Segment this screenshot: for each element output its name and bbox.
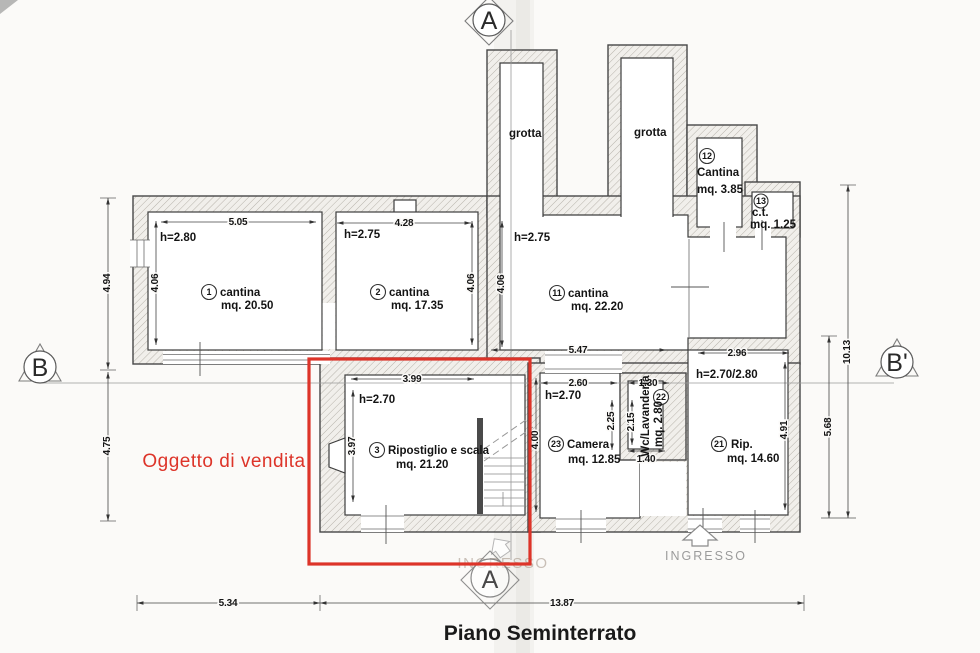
dim-wc-d1: 2.25 bbox=[606, 411, 617, 430]
room-21-height: h=2.70/2.80 bbox=[696, 369, 758, 381]
floor-plan-svg: 5.05 4.28 5.47 2.96 3.99 2.60 1.30 1.40 … bbox=[0, 0, 980, 653]
dim-room1-width: 5.05 bbox=[229, 217, 248, 228]
section-marker-a-top: A bbox=[481, 7, 498, 35]
room-3-height: h=2.70 bbox=[359, 394, 395, 406]
room-1-2-passage bbox=[323, 303, 336, 349]
room-11-number: 11 bbox=[552, 288, 562, 298]
stair-wall bbox=[477, 418, 483, 514]
room-1-number: 1 bbox=[206, 287, 211, 297]
room-12-area: mq. 3.85 bbox=[697, 184, 744, 196]
grotta-left-label: grotta bbox=[509, 128, 542, 140]
dim-room23-w1: 2.60 bbox=[569, 378, 588, 389]
room-2-name: cantina bbox=[389, 287, 430, 299]
room-3-number: 3 bbox=[374, 445, 379, 455]
dim-right-total: 10.13 bbox=[842, 339, 853, 364]
dim-room21-depth: 4.91 bbox=[779, 420, 790, 439]
corridor-interior bbox=[640, 462, 686, 516]
dim-room23-depth: 4.00 bbox=[530, 430, 541, 449]
dim-room2-depth: 4.06 bbox=[466, 273, 477, 292]
room-12-door-opening bbox=[710, 225, 736, 239]
entrance-label: INGRESSO bbox=[665, 549, 747, 563]
dim-room1-depth: 4.06 bbox=[150, 273, 161, 292]
dim-room2-width: 4.28 bbox=[395, 218, 414, 229]
dim-left-upper: 4.94 bbox=[102, 273, 113, 292]
sale-label: Oggetto di vendita bbox=[142, 451, 305, 472]
dim-left-lower: 4.75 bbox=[102, 436, 113, 455]
dim-room3-depth: 3.97 bbox=[347, 436, 358, 455]
grotta-left-interior bbox=[500, 63, 543, 217]
room-13-name: c.t. bbox=[752, 207, 769, 219]
dim-right-lower: 5.68 bbox=[823, 417, 834, 436]
room-3-window-niche bbox=[329, 438, 345, 473]
room-13-number: 13 bbox=[756, 196, 766, 206]
room-1-left-window bbox=[130, 240, 150, 267]
dim-room21-width: 2.96 bbox=[728, 348, 747, 359]
room-22-area: mq. 2.80 bbox=[653, 401, 665, 447]
room-23-name: Camera bbox=[567, 439, 610, 451]
room-3-name: Ripostiglio e scala bbox=[388, 445, 490, 457]
section-marker-a-bottom: A bbox=[482, 566, 499, 594]
dim-bottom-left: 5.34 bbox=[219, 598, 238, 609]
room-12-number: 12 bbox=[702, 151, 712, 161]
floor-plan-page: 5.05 4.28 5.47 2.96 3.99 2.60 1.30 1.40 … bbox=[0, 0, 980, 653]
plan-title: Piano Seminterrato bbox=[444, 622, 637, 645]
room-1-name: cantina bbox=[220, 287, 261, 299]
room-23-height: h=2.70 bbox=[545, 390, 581, 402]
room-3-area: mq. 21.20 bbox=[396, 459, 448, 471]
room-22-name: Wc/Lavanderia bbox=[640, 375, 652, 457]
dim-wc-d2: 2.15 bbox=[626, 412, 637, 431]
room-1-bottom-window bbox=[163, 351, 330, 364]
room-1-area: mq. 20.50 bbox=[221, 300, 273, 312]
room-12-name: Cantina bbox=[697, 167, 740, 179]
dim-bottom-right: 13.87 bbox=[550, 598, 575, 609]
dim-room11-depth: 4.06 bbox=[496, 274, 507, 293]
room-11-area: mq. 22.20 bbox=[571, 301, 623, 313]
room-21-area: mq. 14.60 bbox=[727, 453, 779, 465]
room-23-area: mq. 12.85 bbox=[568, 454, 621, 466]
room-23-number: 23 bbox=[551, 439, 561, 449]
room-11-name: cantina bbox=[568, 288, 609, 300]
section-marker-b-right: B' bbox=[886, 349, 907, 377]
room-2-number: 2 bbox=[375, 287, 380, 297]
dim-room3-width: 3.99 bbox=[403, 374, 422, 385]
room-21-number: 21 bbox=[714, 439, 724, 449]
room-2-height: h=2.75 bbox=[344, 229, 381, 241]
room-21-name: Rip. bbox=[731, 439, 753, 451]
dim-room11-width: 5.47 bbox=[569, 345, 588, 356]
room-13-area: mq. 1.25 bbox=[750, 219, 797, 231]
scan-corner-mark bbox=[0, 0, 18, 14]
room-2-area: mq. 17.35 bbox=[391, 300, 444, 312]
section-marker-b-left: B bbox=[32, 354, 49, 382]
room-11-height: h=2.75 bbox=[514, 232, 551, 244]
room-22-number: 22 bbox=[656, 392, 666, 402]
room-1-height: h=2.80 bbox=[160, 232, 196, 244]
grotta-right-label: grotta bbox=[634, 127, 667, 139]
